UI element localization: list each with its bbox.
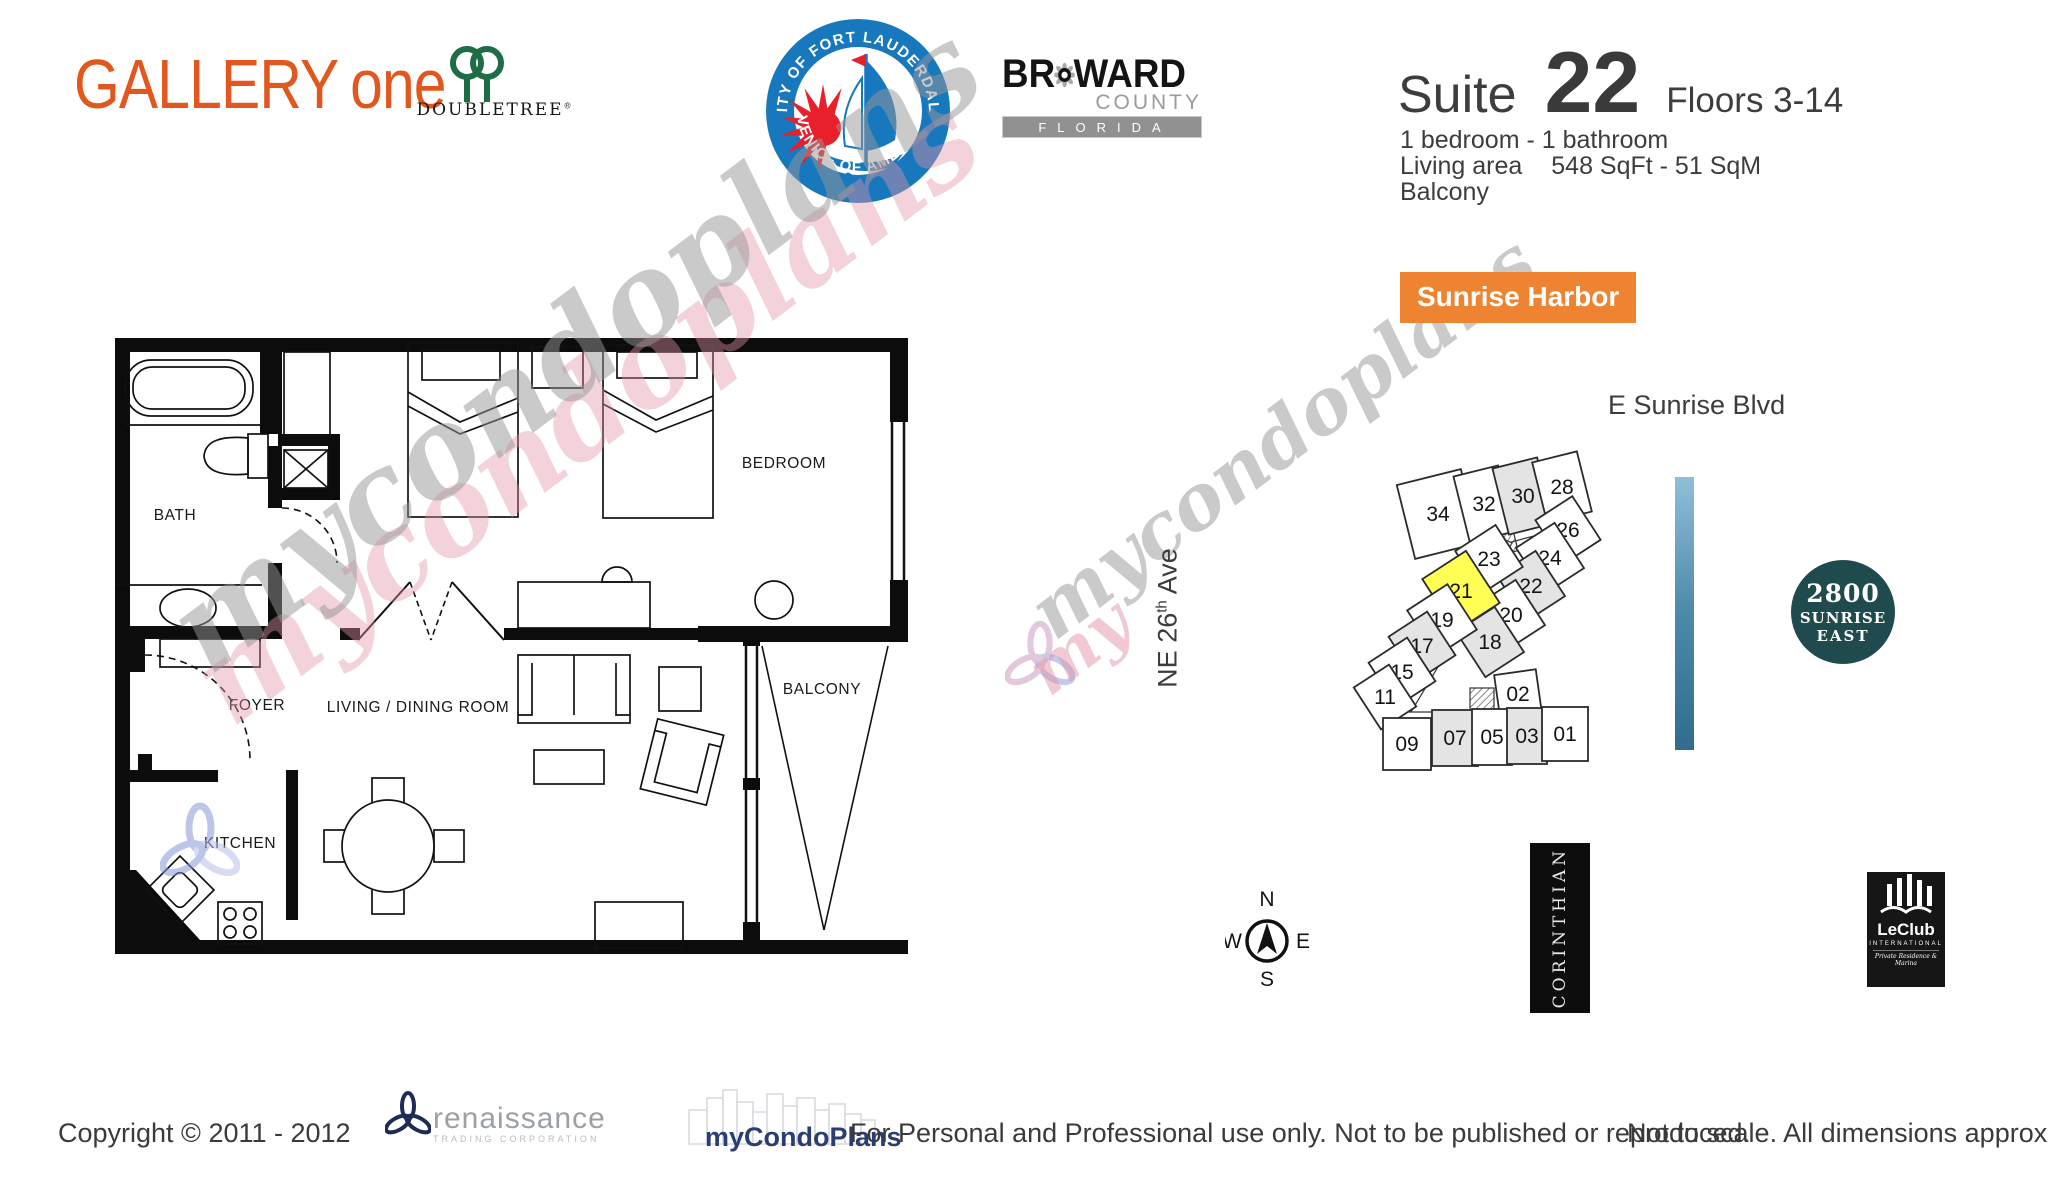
renaissance-trefoil-icon xyxy=(385,1086,431,1146)
coffee-table xyxy=(534,750,604,784)
doubletree-wordmark: DoubleTree® xyxy=(400,100,590,120)
map-unit-03: 03 xyxy=(1507,708,1547,764)
trefoil-flourish-plan xyxy=(160,800,240,895)
wall-bath-closet xyxy=(260,338,282,434)
bedroom-bifold-doors xyxy=(358,582,504,640)
leclub-logo: LeClub INTERNATIONAL Private Residence &… xyxy=(1867,872,1945,987)
shaft xyxy=(284,450,328,488)
wall-shaft-cap xyxy=(278,488,340,500)
svg-text:01: 01 xyxy=(1553,723,1576,746)
svg-text:28: 28 xyxy=(1550,476,1573,499)
bath-sink xyxy=(160,589,216,627)
condo-plan-page: GALLERYone DoubleTree® xyxy=(0,0,2048,1181)
wall-zigzag-stub xyxy=(340,628,360,640)
sunrise-harbor-badge: Sunrise Harbor xyxy=(1400,272,1636,323)
room-label-balcony: BALCONY xyxy=(783,681,861,698)
svg-text:09: 09 xyxy=(1395,733,1418,756)
wall-corner-block xyxy=(115,626,145,672)
living-area-label: Living area xyxy=(1400,152,1522,180)
dresser xyxy=(518,567,650,628)
leclub-name: LeClub xyxy=(1877,920,1935,940)
closet xyxy=(284,352,330,436)
svg-text:03: 03 xyxy=(1515,725,1538,748)
sofa xyxy=(518,655,630,723)
bedroom-window xyxy=(892,422,904,580)
svg-text:11: 11 xyxy=(1374,686,1396,709)
bathtub-inner xyxy=(133,367,245,409)
compass-n: N xyxy=(1259,888,1274,911)
street-left-prefix: NE 26 xyxy=(1153,613,1183,688)
wall-bottom xyxy=(115,940,908,954)
fort-lauderdale-seal: CITY OF FORT LAUDERDALE VENICE OF AMERIC… xyxy=(763,16,953,211)
map-unit-07: 07 xyxy=(1432,710,1478,766)
corinthian-building-sign: CORINTHIAN xyxy=(1530,843,1590,1013)
bed-1 xyxy=(408,343,518,517)
renaissance-logo: renaissance TRADING CORPORATION xyxy=(385,1086,606,1146)
leclub-sub: INTERNATIONAL xyxy=(1869,941,1943,947)
trefoil-flourish-map xyxy=(1005,618,1075,703)
broward-county-logo: BR WARD COUNTY FLORIDA xyxy=(1002,52,1202,138)
wall-right-upper xyxy=(890,338,908,422)
dining-set xyxy=(324,778,464,914)
usage-notice: For Personal and Professional use only. … xyxy=(850,1118,1750,1149)
wall-top xyxy=(115,338,908,352)
svg-text:02: 02 xyxy=(1506,683,1529,706)
suite-label: Suite xyxy=(1398,65,1517,125)
gallery-one-logo: GALLERYone xyxy=(74,44,446,124)
room-label-foyer: FOYER xyxy=(229,697,285,714)
suite-balcony-feature: Balcony xyxy=(1400,179,1761,205)
living-area-value: 548 SqFt - 51 SqM xyxy=(1551,152,1761,180)
wall-bath-stub-upper xyxy=(268,446,282,508)
leclub-bars-icon xyxy=(1871,872,1941,918)
broward-sun-icon xyxy=(1054,58,1074,92)
compass-rose: N E S W xyxy=(1225,888,1310,993)
svg-text:34: 34 xyxy=(1426,503,1450,526)
compass-needle xyxy=(1257,923,1277,954)
svg-text:07: 07 xyxy=(1443,727,1466,750)
broward-ward: WARD xyxy=(1074,52,1186,97)
bed-2 xyxy=(603,345,713,518)
compass-s: S xyxy=(1260,968,1274,988)
street-label-sunrise-blvd: E Sunrise Blvd xyxy=(1608,390,1785,421)
stove xyxy=(218,902,262,944)
wall-balcony-top xyxy=(698,626,908,642)
armchair xyxy=(640,719,723,805)
suite-bed-bath: 1 bedroom - 1 bathroom xyxy=(1400,127,1761,153)
map-unit-09: 09 xyxy=(1383,718,1431,770)
doubletree-reg: ® xyxy=(564,101,574,110)
leclub-tagline: Private Residence & Marina xyxy=(1873,950,1939,967)
toilet xyxy=(204,434,268,478)
renaissance-sub: TRADING CORPORATION xyxy=(433,1134,606,1144)
balcony-windows xyxy=(743,626,760,940)
s2800-number: 2800 xyxy=(1806,579,1880,608)
suite-floors: Floors 3-14 xyxy=(1666,81,1843,121)
wall-bedroom-living xyxy=(504,628,704,640)
bedroom-stool xyxy=(755,581,793,619)
room-label-living: LIVING / DINING ROOM xyxy=(327,699,510,716)
svg-text:18: 18 xyxy=(1478,631,1501,654)
brand-gallery: GALLERY xyxy=(74,45,338,123)
map-stairs-lower xyxy=(1470,688,1494,710)
compass-w: W xyxy=(1225,930,1242,953)
broward-florida-bar: FLORIDA xyxy=(1002,116,1202,138)
doubletree-name: DoubleTree xyxy=(416,100,563,120)
svg-text:23: 23 xyxy=(1477,548,1500,571)
svg-text:05: 05 xyxy=(1480,726,1503,749)
renaissance-name: renaissance xyxy=(433,1104,606,1134)
entry-door-hinge xyxy=(138,754,152,770)
svg-text:30: 30 xyxy=(1511,485,1534,508)
street-left-sup: th xyxy=(1154,600,1171,613)
wall-kitchen-top xyxy=(128,770,218,782)
site-map-units: 3432302826242220180223211917151109070503… xyxy=(1354,451,1601,770)
s2800-east: EAST xyxy=(1816,627,1869,645)
map-unit-05: 05 xyxy=(1472,709,1512,765)
map-water-strip xyxy=(1675,477,1694,750)
corinthian-label: CORINTHIAN xyxy=(1550,847,1570,1008)
wall-kitchen-right xyxy=(286,770,298,920)
foyer-niche xyxy=(160,639,260,667)
nightstand xyxy=(532,347,583,388)
copyright-text: Copyright © 2011 - 2012 xyxy=(58,1118,351,1149)
suite-number: 22 xyxy=(1545,34,1641,133)
suite-details: 1 bedroom - 1 bathroom Living area 548 S… xyxy=(1400,127,1761,205)
sunrise-east-2800-logo: 2800 SUNRISE EAST xyxy=(1791,560,1895,664)
broward-br: BR xyxy=(1002,52,1055,97)
compass-e: E xyxy=(1296,930,1310,953)
svg-text:32: 32 xyxy=(1472,493,1495,516)
bath-door-arc xyxy=(282,508,337,563)
site-map: 3432302826242220180223211917151109070503… xyxy=(1330,430,1730,895)
map-unit-01: 01 xyxy=(1542,707,1588,761)
broward-wordmark: BR WARD xyxy=(1002,52,1186,97)
side-table xyxy=(659,667,701,711)
street-label-ne-26th-ave: NE 26th Ave xyxy=(1153,548,1184,688)
scale-notice: Not to scale. All dimensions approximate… xyxy=(1627,1118,2048,1149)
suite-heading: Suite 22 Floors 3-14 xyxy=(1398,34,1843,133)
street-left-suffix: Ave xyxy=(1153,548,1183,600)
s2800-sunrise: SUNRISE xyxy=(1800,609,1886,627)
room-label-bedroom: BEDROOM xyxy=(742,455,826,472)
room-label-bath: BATH xyxy=(154,507,197,524)
